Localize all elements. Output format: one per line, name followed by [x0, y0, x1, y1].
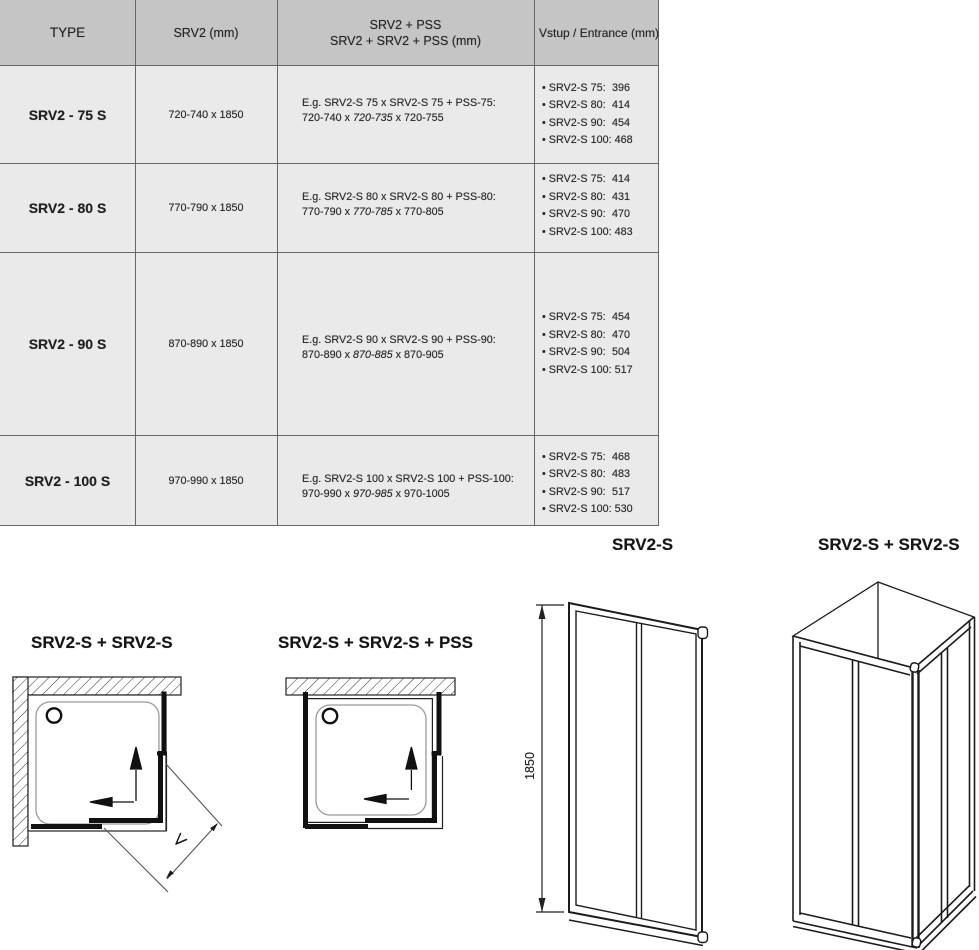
svg-text:1850: 1850: [523, 752, 537, 780]
